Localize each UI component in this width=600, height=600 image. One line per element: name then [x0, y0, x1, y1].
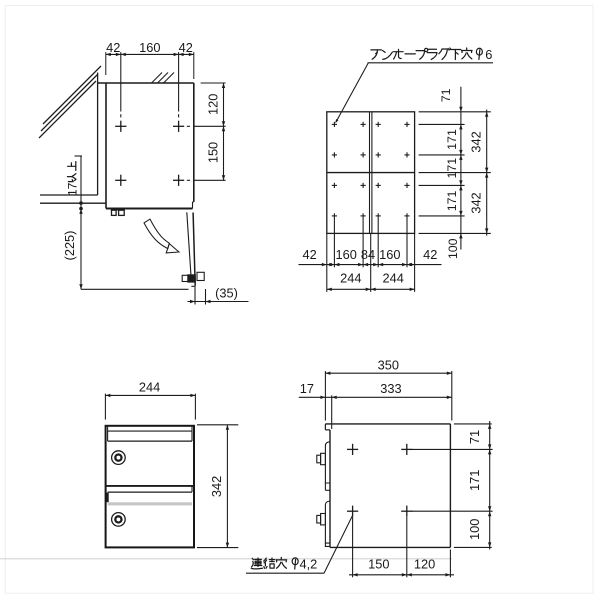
svg-text:160: 160: [139, 40, 160, 55]
svg-text:244: 244: [340, 271, 361, 286]
svg-text:120: 120: [414, 557, 435, 572]
svg-text:342: 342: [468, 131, 483, 152]
svg-text:42: 42: [302, 247, 316, 262]
svg-text:6: 6: [485, 47, 492, 62]
svg-text:42: 42: [423, 247, 437, 262]
svg-text:171: 171: [445, 190, 459, 211]
svg-text:171: 171: [467, 470, 482, 491]
svg-text:(35): (35): [215, 285, 238, 300]
svg-text:71: 71: [439, 88, 453, 102]
svg-text:71: 71: [467, 430, 482, 444]
svg-text:150: 150: [205, 142, 220, 163]
svg-text:342: 342: [209, 476, 224, 497]
svg-text:244: 244: [139, 380, 160, 395]
svg-text:17: 17: [65, 182, 79, 196]
svg-text:150: 150: [368, 557, 389, 572]
svg-text:42: 42: [179, 40, 193, 55]
svg-text:333: 333: [380, 381, 401, 396]
svg-text:(225): (225): [62, 231, 77, 261]
svg-text:244: 244: [383, 271, 404, 286]
svg-text:350: 350: [378, 358, 399, 373]
svg-text:100: 100: [446, 238, 460, 259]
svg-text:171: 171: [445, 129, 459, 150]
svg-text:120: 120: [205, 94, 220, 115]
svg-text:160: 160: [379, 247, 400, 262]
svg-text:342: 342: [468, 192, 483, 213]
svg-text:17: 17: [300, 381, 314, 396]
svg-text:100: 100: [467, 519, 482, 540]
svg-text:171: 171: [445, 158, 459, 179]
svg-text:160: 160: [336, 247, 357, 262]
svg-text:42: 42: [106, 40, 120, 55]
svg-text:4,2: 4,2: [300, 557, 318, 572]
svg-text:84: 84: [361, 247, 375, 262]
